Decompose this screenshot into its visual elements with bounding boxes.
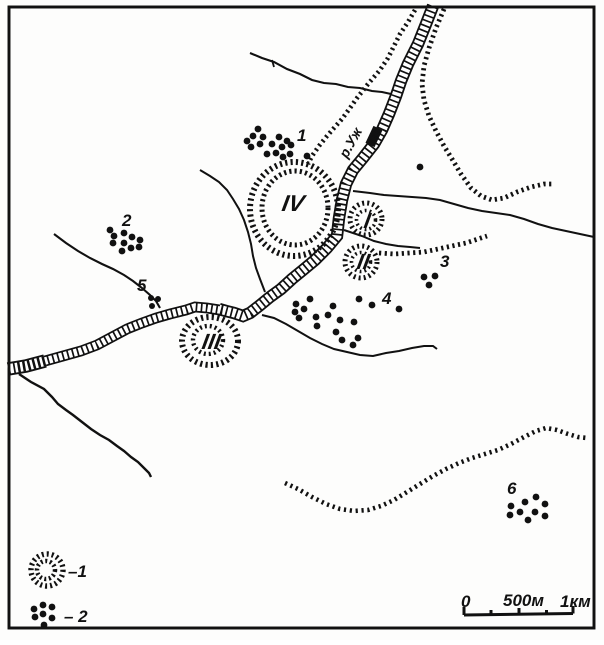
svg-text:5: 5 — [137, 276, 147, 295]
svg-text:–1: –1 — [68, 562, 87, 581]
svg-text:6: 6 — [507, 479, 517, 498]
svg-text:1км: 1км — [560, 592, 591, 611]
svg-text:4: 4 — [381, 289, 392, 308]
svg-text:0: 0 — [461, 592, 471, 611]
svg-text:500м: 500м — [503, 591, 544, 610]
svg-text:– 2: – 2 — [64, 607, 88, 626]
svg-text:1: 1 — [297, 126, 306, 145]
svg-text:2: 2 — [121, 211, 132, 230]
svg-text:3: 3 — [440, 252, 450, 271]
